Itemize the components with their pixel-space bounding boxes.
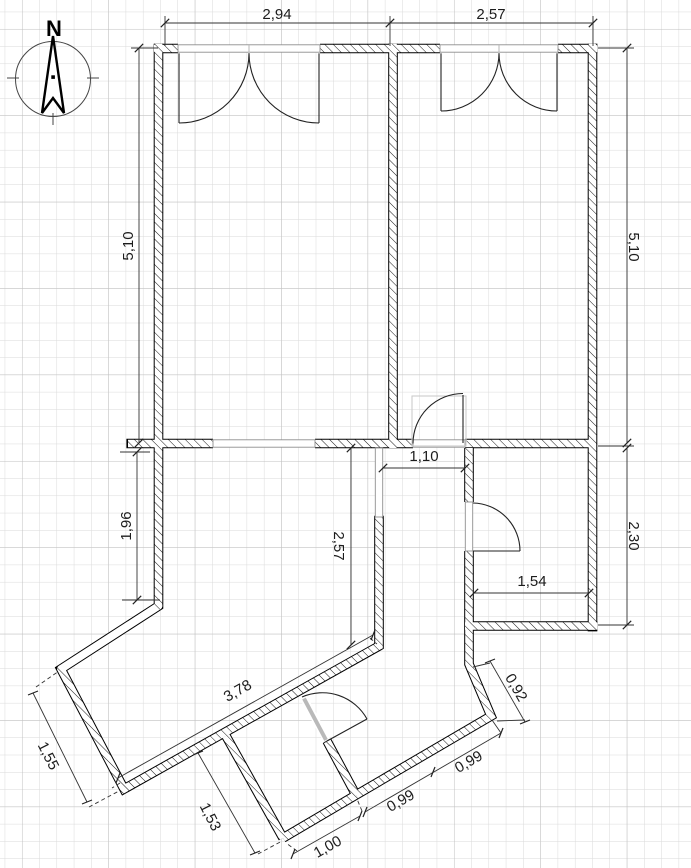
compass-center-dot bbox=[51, 75, 55, 79]
dim-label-hall-width[interactable]: 1,10 bbox=[409, 448, 438, 465]
dim-label-left-upper-height[interactable]: 5,10 bbox=[120, 231, 137, 260]
opening-bath-door bbox=[465, 502, 472, 551]
grid-paper bbox=[0, 0, 691, 868]
dim-label-hall-length[interactable]: 2,57 bbox=[330, 531, 347, 560]
opening-passage bbox=[213, 440, 315, 447]
opening-hall bbox=[375, 448, 382, 517]
dim-label-left-lower-height[interactable]: 1,96 bbox=[118, 511, 135, 540]
dim-label-top-right-width[interactable]: 2,57 bbox=[476, 6, 505, 23]
plan-canvas[interactable]: 2,94 2,57 5,10 1,96 5,10 2,30 2,57 1,10 … bbox=[0, 0, 691, 868]
dim-label-bath-inner-width[interactable]: 1,54 bbox=[517, 573, 546, 590]
dim-label-top-left-width[interactable]: 2,94 bbox=[262, 6, 291, 23]
compass-north-label: N bbox=[46, 16, 62, 41]
dim-label-right-lower-height[interactable]: 2,30 bbox=[625, 521, 642, 550]
dim-label-right-upper-height[interactable]: 5,10 bbox=[625, 232, 642, 261]
